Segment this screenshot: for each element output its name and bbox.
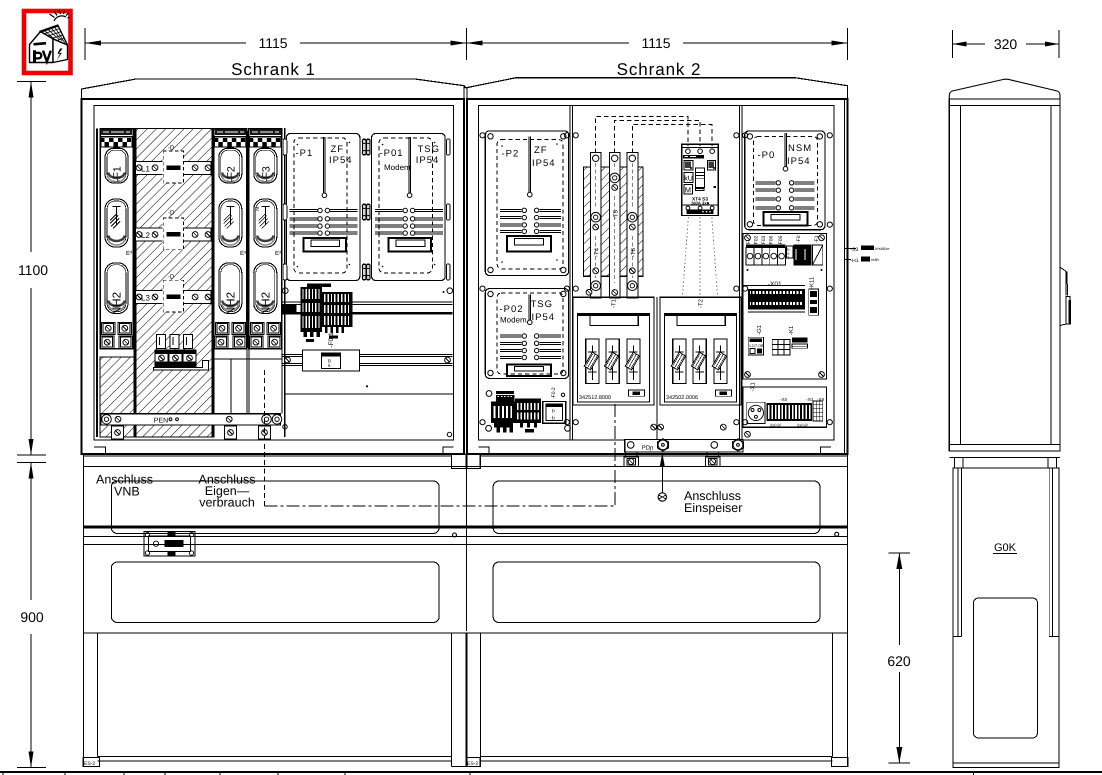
svg-text:VNB: VNB — [114, 485, 140, 499]
svg-text:-F02: -F02 — [754, 236, 760, 247]
svg-text:IP54: IP54 — [329, 155, 353, 166]
svg-text:M: M — [685, 186, 691, 195]
svg-text:620: 620 — [887, 653, 911, 669]
svg-text:-D: -D — [168, 210, 175, 217]
svg-text:-K11: -K11 — [809, 276, 816, 289]
svg-text:-T1: -T1 — [611, 298, 618, 308]
svg-text:-W1: -W1 — [284, 306, 293, 312]
svg-text:-P02: -P02 — [500, 304, 524, 315]
svg-text:-P1: -P1 — [296, 148, 314, 159]
svg-text:NSM: NSM — [788, 143, 812, 154]
svg-text:-T5: -T5 — [612, 209, 619, 219]
svg-text:L2: L2 — [141, 231, 150, 240]
svg-text:-G1: -G1 — [756, 324, 763, 335]
svg-text:NH2: NH2 — [260, 292, 272, 315]
svg-text:-S3: -S3 — [851, 247, 859, 253]
svg-text:Modem: Modem — [500, 316, 527, 325]
svg-text:ES-2: ES-2 — [467, 761, 478, 767]
svg-text:-F03: -F03 — [761, 236, 767, 247]
svg-text:Einspeiser: Einspeiser — [684, 501, 742, 515]
svg-text:342512.8000: 342512.8000 — [579, 395, 611, 401]
svg-text:Schrank 1: Schrank 1 — [231, 60, 316, 79]
svg-text:-P0: -P0 — [758, 150, 776, 161]
svg-text:-F0.2: -F0.2 — [551, 387, 557, 399]
svg-text:ZF: ZF — [534, 145, 548, 156]
svg-text:-F0.1: -F0.1 — [328, 332, 335, 348]
svg-text:-T6: -T6 — [630, 247, 637, 257]
svg-text:2x0.6²: 2x0.6² — [770, 423, 782, 428]
svg-text:2x0.6²: 2x0.6² — [797, 423, 809, 428]
svg-text:-F06: -F06 — [769, 236, 775, 247]
svg-text:-D: -D — [168, 145, 175, 152]
svg-text:-P01: -P01 — [380, 148, 404, 159]
svg-text:1115: 1115 — [258, 35, 287, 51]
svg-text:-X01: -X01 — [768, 281, 782, 288]
svg-text:G0K: G0K — [994, 542, 1017, 554]
svg-text:Modem: Modem — [384, 163, 411, 172]
svg-text:-T2: -T2 — [697, 298, 704, 308]
svg-text:Schrank 2: Schrank 2 — [617, 60, 702, 79]
svg-text:IP54: IP54 — [787, 156, 811, 167]
svg-text:L1: L1 — [141, 165, 150, 174]
svg-text:PEN: PEN — [154, 418, 168, 425]
svg-text:-X0: -X0 — [806, 397, 814, 402]
svg-text:TSG: TSG — [418, 144, 441, 155]
svg-text:L1/7.08: L1/7.08 — [750, 343, 764, 348]
svg-text:-F2: -F2 — [225, 166, 237, 182]
svg-text:NH2: NH2 — [112, 292, 124, 315]
svg-text:ZF: ZF — [331, 144, 345, 155]
svg-text:-H1: -H1 — [851, 258, 859, 264]
svg-text:320: 320 — [994, 36, 1018, 52]
svg-text:-F1: -F1 — [112, 166, 124, 182]
svg-text:IP54: IP54 — [532, 158, 556, 169]
svg-text:L3: L3 — [141, 294, 150, 303]
svg-text:342502.0006: 342502.0006 — [666, 395, 698, 401]
svg-text:900: 900 — [20, 609, 44, 625]
svg-text:-X1: -X1 — [750, 382, 757, 392]
svg-text:E³: E³ — [275, 250, 281, 257]
svg-text:Irrstütze: Irrstütze — [875, 246, 890, 251]
svg-text:IP54: IP54 — [416, 155, 440, 166]
svg-text:-F3: -F3 — [260, 166, 272, 182]
svg-text:1115: 1115 — [641, 35, 670, 51]
svg-text:verbrauch: verbrauch — [199, 496, 255, 510]
svg-text:NH2: NH2 — [225, 292, 237, 315]
svg-text:-P2: -P2 — [502, 149, 520, 160]
svg-text:-D: -D — [168, 274, 175, 281]
svg-text:E³: E³ — [126, 250, 132, 257]
svg-text:-F05: -F05 — [778, 236, 784, 247]
svg-text:b: b — [552, 416, 555, 422]
svg-text:-K1: -K1 — [788, 325, 795, 335]
svg-text:b: b — [552, 409, 555, 415]
svg-text:kU: kU — [684, 174, 693, 182]
svg-text:-X8: -X8 — [780, 397, 788, 402]
svg-text:-F0: -F0 — [796, 235, 802, 243]
svg-text:-T4: -T4 — [593, 247, 600, 257]
svg-text:TSG: TSG — [531, 299, 554, 310]
svg-text:1100: 1100 — [18, 262, 48, 278]
svg-text:ES-2: ES-2 — [84, 761, 95, 767]
svg-text:E³: E³ — [240, 250, 246, 257]
svg-text:N: N — [255, 207, 261, 211]
svg-text:mäh: mäh — [871, 257, 879, 262]
svg-text:IP54: IP54 — [532, 312, 556, 323]
svg-text:PDɲ: PDɲ — [642, 445, 654, 452]
